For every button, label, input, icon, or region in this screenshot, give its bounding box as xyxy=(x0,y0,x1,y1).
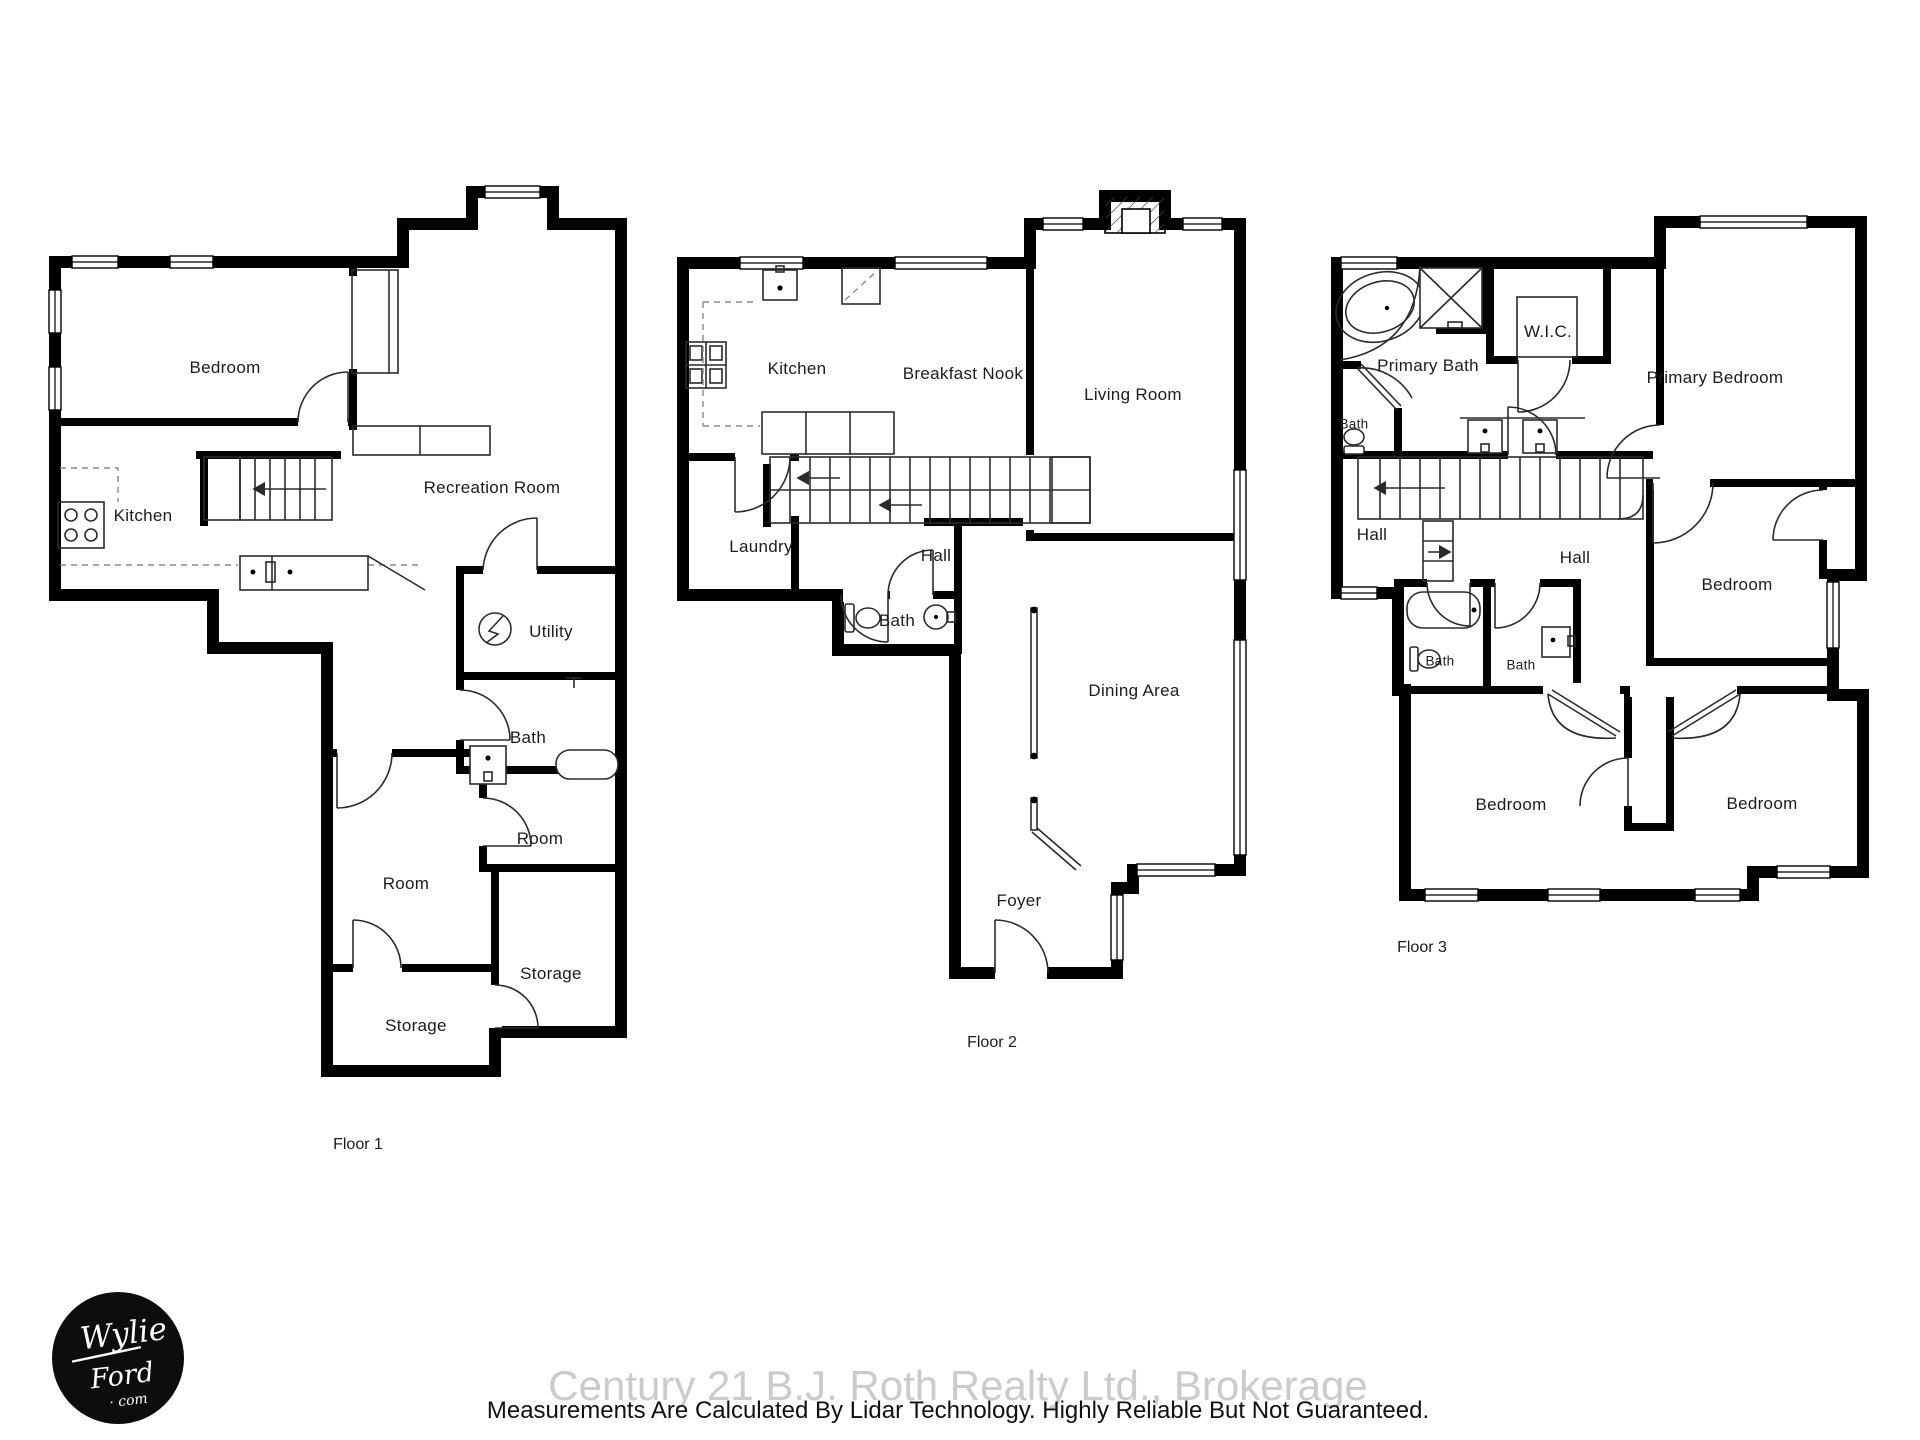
floor1-doors xyxy=(298,372,538,1028)
room-label-breakfast-nook: Breakfast Nook xyxy=(903,364,1023,384)
room-label-bath-f2: Bath xyxy=(879,611,915,631)
room-label-primary-bath: Primary Bath xyxy=(1377,356,1479,376)
room-label-wic: W.I.C. xyxy=(1524,322,1572,342)
room-label-bath-f1: Bath xyxy=(510,728,546,748)
floorplan-canvas: Wylie Ford · com xyxy=(0,0,1920,1440)
floor2-stove-icon xyxy=(686,342,726,388)
floor2-fireplace-icon xyxy=(1105,196,1165,233)
room-label-bath-b: Bath xyxy=(1507,658,1536,673)
bath-sink-icon xyxy=(1542,627,1570,657)
corner-tub-platform xyxy=(1340,266,1420,360)
tub-icon xyxy=(556,750,618,779)
room-label-bedroom-a: Bedroom xyxy=(1701,575,1772,595)
floor1-door-openings xyxy=(298,415,537,1028)
room-label-kitchen-f2: Kitchen xyxy=(768,359,827,379)
room-label-room-a: Room xyxy=(517,829,564,849)
room-label-bedroom-c: Bedroom xyxy=(1726,794,1797,814)
floor2-railing xyxy=(1031,607,1081,870)
room-label-hall-a: Hall xyxy=(1357,525,1388,545)
tub-icon xyxy=(1407,592,1480,628)
room-label-foyer: Foyer xyxy=(997,891,1042,911)
room-label-bedroom: Bedroom xyxy=(189,358,260,378)
floor1-kitchen-counter xyxy=(60,468,425,590)
wylie-ford-logo: Wylie Ford · com xyxy=(52,1292,184,1424)
room-label-recreation-room: Recreation Room xyxy=(424,478,561,498)
room-label-primary-bedroom: Primary Bedroom xyxy=(1647,368,1784,388)
floor1-stove-icon xyxy=(58,502,104,548)
floor1-interior-walls xyxy=(55,262,621,1032)
floor1-caption: Floor 1 xyxy=(333,1136,383,1154)
room-label-room-b: Room xyxy=(383,874,430,894)
floor1-stairs-icon xyxy=(204,457,332,520)
room-label-dining-area: Dining Area xyxy=(1088,681,1179,701)
floor3-stairs-icon xyxy=(1358,457,1643,581)
floor1-utility-meter-icon xyxy=(479,613,511,645)
room-label-bath-a: Bath xyxy=(1426,654,1455,669)
room-label-kitchen: Kitchen xyxy=(114,506,173,526)
room-label-storage-a: Storage xyxy=(520,964,582,984)
floorplan-page: Wylie Ford · com Bedroom Kitchen Recreat… xyxy=(0,0,1920,1440)
room-label-bath-hall: Bath xyxy=(1340,417,1369,432)
floor1-closet-icon xyxy=(352,270,490,455)
floor2-stairs-icon xyxy=(770,457,1090,523)
floor2-sink-icon xyxy=(763,270,797,300)
toilet-icon xyxy=(1410,647,1418,671)
room-label-utility: Utility xyxy=(529,622,573,642)
room-label-bedroom-b: Bedroom xyxy=(1475,795,1546,815)
room-label-hall-f2: Hall xyxy=(921,546,952,566)
room-label-laundry: Laundry xyxy=(729,537,793,557)
double-sink-icon xyxy=(1468,420,1502,453)
room-label-living-room: Living Room xyxy=(1084,385,1182,405)
floor1-sink-icon xyxy=(240,556,368,590)
room-label-hall-b: Hall xyxy=(1560,548,1591,568)
floor2-plan xyxy=(683,196,1246,980)
floor2-caption: Floor 2 xyxy=(967,1034,1017,1052)
floor2-island-icon xyxy=(762,412,894,454)
measurement-disclaimer: Measurements Are Calculated By Lidar Tec… xyxy=(487,1397,1429,1425)
room-label-storage-b: Storage xyxy=(385,1016,447,1036)
floor3-caption: Floor 3 xyxy=(1397,939,1447,957)
bath-sink-icon xyxy=(470,746,506,784)
floor3-interior-walls xyxy=(1337,263,1861,827)
